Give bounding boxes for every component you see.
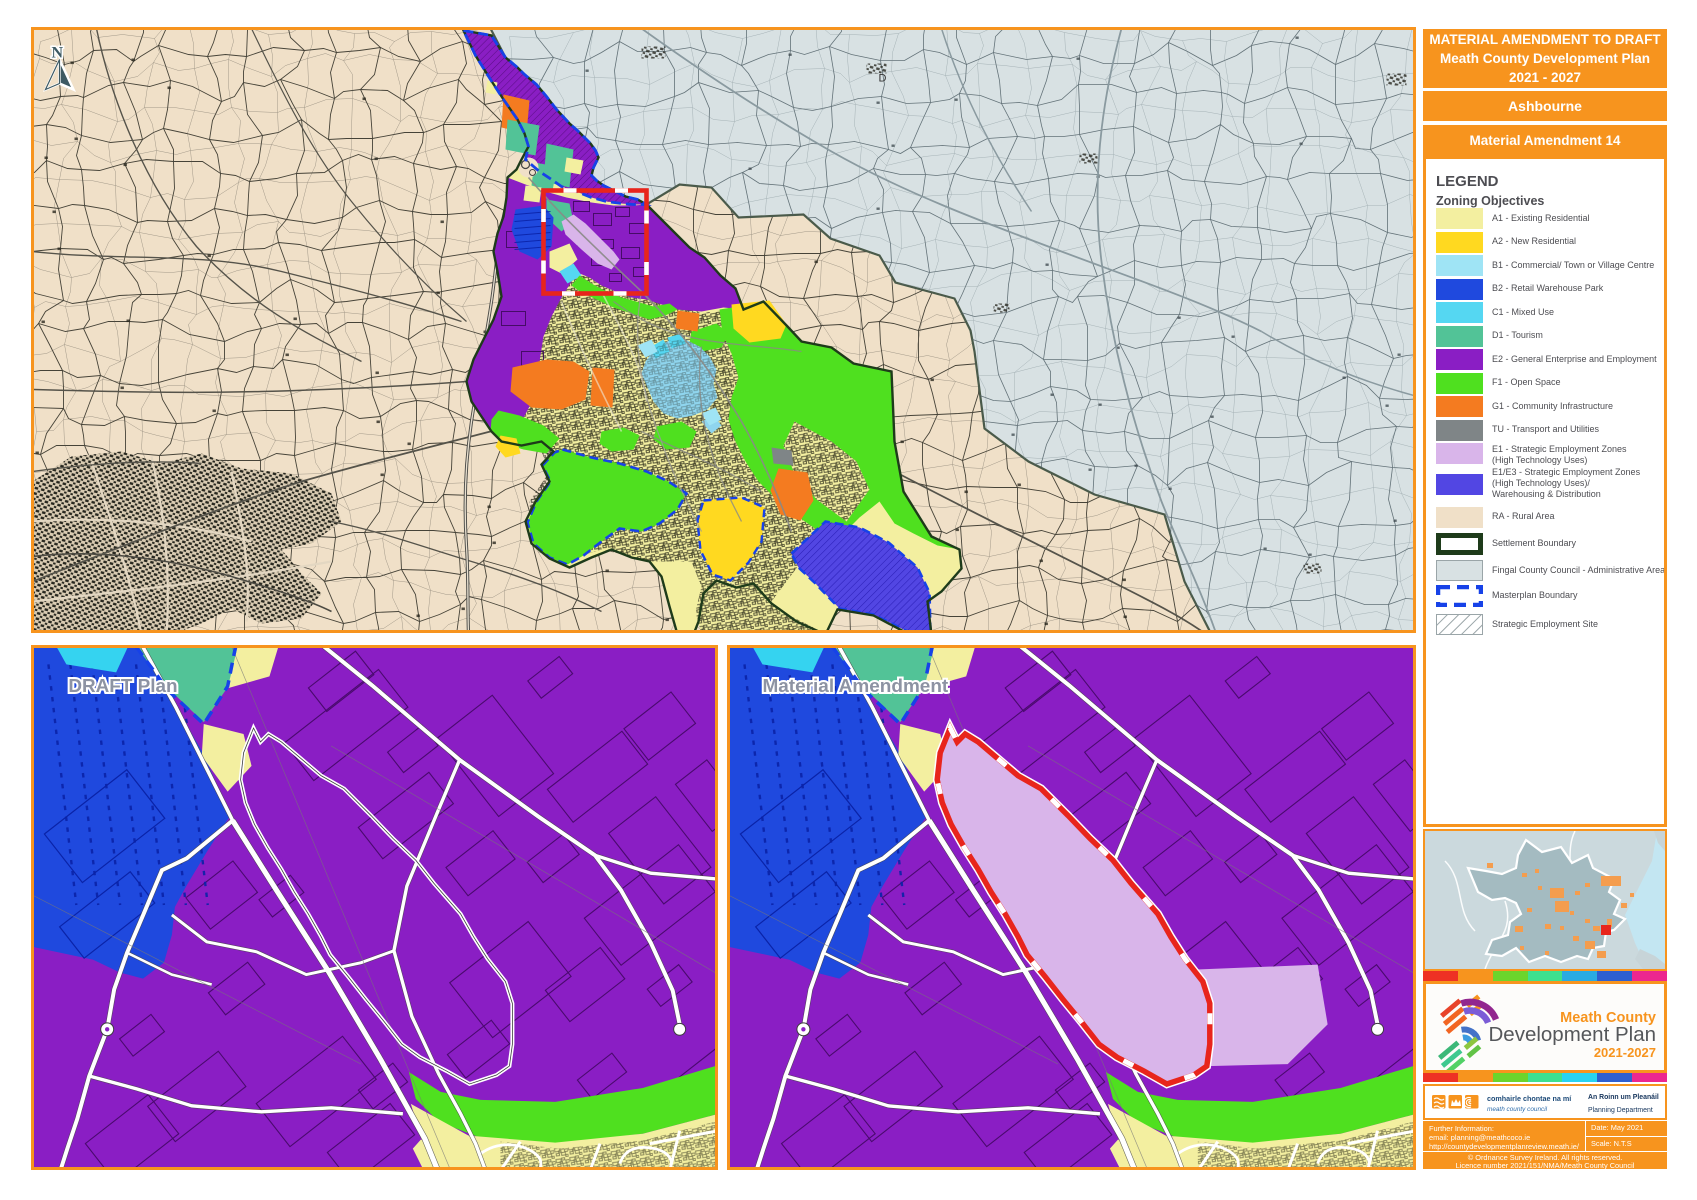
svg-text:meath county council: meath county council	[1487, 1106, 1548, 1113]
svg-text:Planning Department: Planning Department	[1588, 1107, 1653, 1114]
svg-text:N: N	[52, 45, 64, 62]
svg-text:Material Amendment: Material Amendment	[762, 676, 949, 697]
svg-text:DRAFT Plan: DRAFT Plan	[68, 676, 177, 697]
svg-text:2021-2027: 2021-2027	[1594, 1045, 1656, 1060]
svg-text:Development Plan: Development Plan	[1488, 1023, 1656, 1046]
svg-text:D: D	[879, 73, 887, 85]
svg-text:An Roinn um Pleanáil: An Roinn um Pleanáil	[1588, 1094, 1659, 1101]
svg-text:comhairle chontae na mí: comhairle chontae na mí	[1487, 1094, 1572, 1103]
